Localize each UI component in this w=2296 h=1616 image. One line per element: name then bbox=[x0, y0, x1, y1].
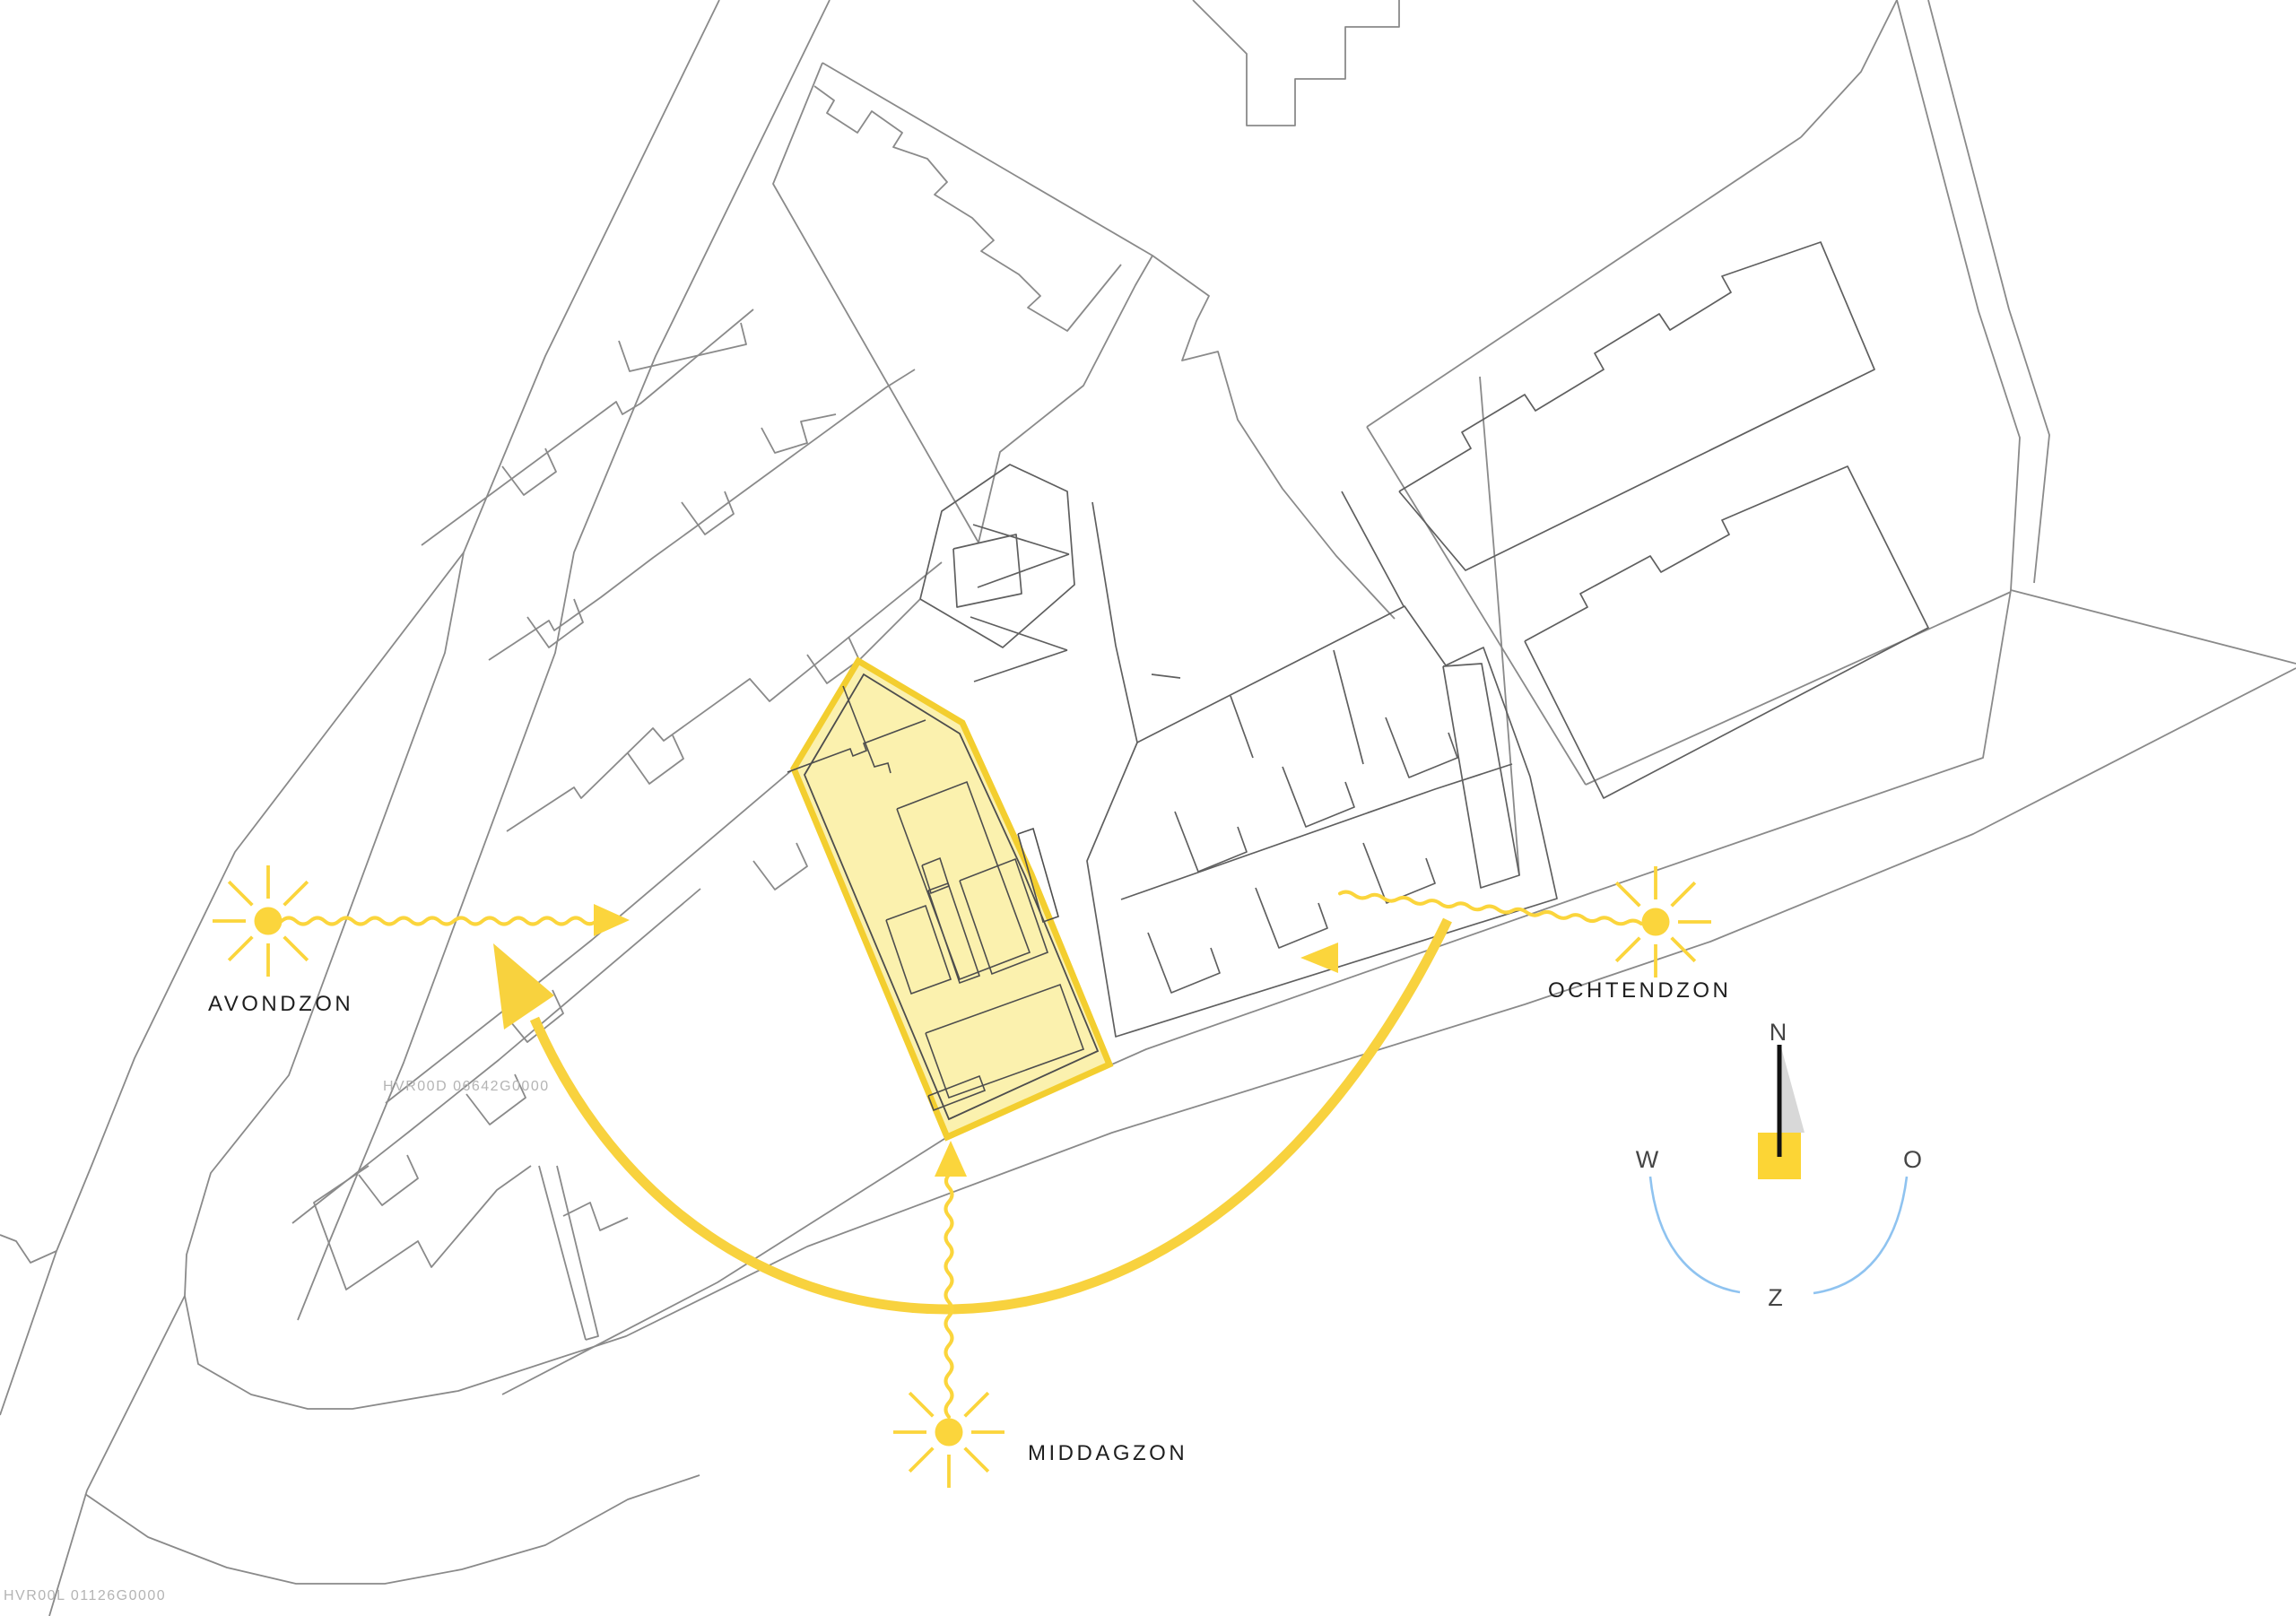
sawtooth-1 bbox=[619, 323, 746, 371]
compass-letter-w: W bbox=[1636, 1146, 1659, 1173]
sun-ochtendzon-ray-icon bbox=[1616, 938, 1639, 961]
sun-path-arrowhead-icon bbox=[493, 943, 554, 1030]
pentagon-house bbox=[920, 465, 1074, 647]
sun-middagzon-ray-icon bbox=[909, 1393, 933, 1416]
rightblock-tick-above bbox=[1152, 674, 1180, 678]
wedge-2a bbox=[970, 617, 1067, 650]
topcenter-building-steps bbox=[814, 86, 1121, 331]
sun-middagzon-label: MIDDAGZON bbox=[1028, 1441, 1187, 1465]
small-stepped-block-top bbox=[1193, 0, 1399, 126]
compass-arc-east-icon bbox=[1813, 1177, 1907, 1293]
parcel-id-hvr00l: HVR00L 01126G0000 bbox=[4, 1588, 166, 1603]
rightblock-outline bbox=[1087, 606, 1557, 1037]
compass-group: NWOZ bbox=[1636, 1019, 1923, 1311]
rightblock-wall-b bbox=[1334, 650, 1363, 764]
road-west-inner-edge bbox=[298, 0, 830, 1320]
midblock-row4 bbox=[386, 769, 794, 1103]
sun-ochtendzon-ray-icon bbox=[1616, 882, 1639, 906]
parcel-tick-west bbox=[0, 1235, 57, 1263]
site-plan-svg: NWOZ AVONDZONOCHTENDZONMIDDAGZONHVR00D 0… bbox=[0, 0, 2296, 1616]
wedge-1b bbox=[978, 554, 1069, 587]
road-west-fork bbox=[0, 552, 464, 1415]
sun-avondzon-disc-icon bbox=[255, 908, 283, 935]
lower-road-curve bbox=[85, 1475, 700, 1584]
right-road-elbow-east bbox=[2011, 590, 2296, 664]
midblock-row1 bbox=[422, 309, 753, 545]
bottom-road-south-edge bbox=[185, 668, 2296, 1409]
compass-letter-o: O bbox=[1903, 1146, 1923, 1173]
street-west-line bbox=[1092, 502, 1137, 743]
parcel-id-hvr00d: HVR00D 06642G0000 bbox=[383, 1079, 550, 1094]
wedge-1a bbox=[973, 525, 1069, 554]
sun-middagzon-ray-icon bbox=[909, 1448, 933, 1472]
map-text-group: AVONDZONOCHTENDZONMIDDAGZONHVR00D 06642G… bbox=[4, 978, 1731, 1603]
bigblock-west-edge bbox=[1367, 427, 1586, 785]
sun-avondzon-ray-icon bbox=[229, 937, 252, 960]
sawtooth-4 bbox=[682, 491, 734, 534]
apex-link-line bbox=[858, 599, 920, 661]
sun-middagzon-wavy-ray-icon bbox=[946, 1173, 952, 1417]
bigblock-south-edge bbox=[1586, 592, 2011, 785]
compass-shadow-icon bbox=[1781, 1047, 1805, 1133]
bigblock-nw-edge bbox=[1367, 137, 1801, 427]
sun-avondzon-ray-icon bbox=[284, 937, 308, 960]
wedge-2b bbox=[974, 650, 1067, 682]
sun-middagzon-ray-icon bbox=[965, 1393, 988, 1416]
rightblock-step-5 bbox=[1256, 888, 1327, 948]
right-road-west-edge bbox=[1897, 0, 2020, 590]
sun-avondzon-wavy-ray-icon bbox=[282, 918, 597, 925]
sawtooth-9 bbox=[359, 1155, 418, 1205]
street-mid-line bbox=[1342, 491, 1404, 606]
sun-avondzon-ray-icon bbox=[229, 882, 252, 905]
bigblock-building-a bbox=[1399, 242, 1874, 570]
compass-letter-z: Z bbox=[1768, 1284, 1784, 1311]
sun-ochtendzon-disc-icon bbox=[1642, 908, 1670, 936]
sun-avondzon-arrowhead-icon bbox=[594, 904, 630, 936]
road-west-edge bbox=[49, 0, 719, 1616]
sawtooth-2 bbox=[502, 448, 556, 495]
sawtooth-3 bbox=[527, 599, 583, 647]
topcenter-building-outline bbox=[773, 63, 1152, 543]
highlighted-parcel bbox=[794, 661, 1109, 1137]
sun-ochtendzon-ray-icon bbox=[1672, 882, 1695, 906]
compass-letter-n: N bbox=[1770, 1019, 1788, 1046]
topcenter-right-boundary bbox=[1152, 256, 1395, 619]
rightblock-step-3 bbox=[1386, 717, 1457, 778]
sun-avondzon-label: AVONDZON bbox=[208, 992, 353, 1016]
rightblock-tallrect bbox=[1443, 664, 1519, 888]
compass-arc-west-icon bbox=[1650, 1177, 1740, 1292]
midblock-row2 bbox=[489, 369, 915, 660]
sun-ochtendzon-ray-icon bbox=[1672, 938, 1695, 961]
cadastral-map-lines bbox=[0, 0, 2296, 1616]
site-plan-page: NWOZ AVONDZONOCHTENDZONMIDDAGZONHVR00D 0… bbox=[0, 0, 2296, 1616]
bigblock-ne-corner bbox=[1801, 0, 1897, 137]
sun-middagzon-arrowhead-icon bbox=[935, 1141, 967, 1177]
bigblock-building-b bbox=[1525, 466, 1928, 798]
sawtooth-10 bbox=[753, 843, 807, 890]
sawtooth-5 bbox=[628, 735, 683, 784]
street-divider-right bbox=[1480, 377, 1519, 875]
sun-ochtendzon-label: OCHTENDZON bbox=[1548, 978, 1731, 1003]
sun-middagzon-ray-icon bbox=[965, 1448, 988, 1472]
rightblock-wall-a bbox=[1231, 696, 1253, 758]
rightblock-step-4 bbox=[1148, 933, 1220, 993]
rightblock-step-2 bbox=[1283, 767, 1354, 827]
sun-ochtendzon bbox=[1300, 866, 1711, 977]
sun-avondzon-ray-icon bbox=[284, 882, 308, 905]
pentagon-inner-square bbox=[953, 534, 1022, 607]
sun-ochtendzon-arrowhead-icon bbox=[1300, 943, 1338, 973]
right-road-east-edge bbox=[1928, 0, 2049, 583]
house-bottom-left bbox=[314, 1166, 531, 1290]
sun-middagzon-disc-icon bbox=[935, 1419, 963, 1447]
rightblock-midline bbox=[1121, 764, 1512, 899]
bottomleft-stepped bbox=[563, 1203, 628, 1230]
highlighted-parcel-group bbox=[787, 661, 1109, 1137]
topcenter-strip-zigzag bbox=[761, 414, 836, 453]
rightblock-step-1 bbox=[1175, 812, 1247, 872]
